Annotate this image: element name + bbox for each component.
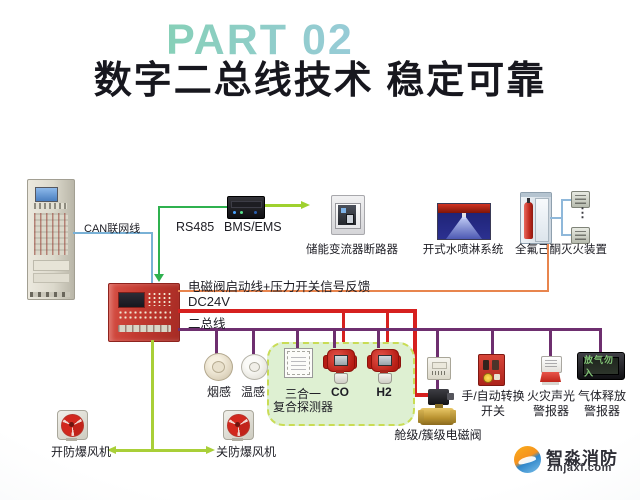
detector-lcd	[378, 355, 392, 366]
brand-logo-icon	[514, 446, 541, 473]
cabinet-foot	[30, 292, 70, 297]
three-in-one-detector-image	[284, 348, 313, 378]
page-title: 数字二总线技术 稳定可靠	[0, 49, 640, 104]
breaker-label: 储能变流器断路器	[306, 241, 398, 257]
panel-lcd	[118, 292, 145, 308]
nozzle-bracket-line	[561, 199, 563, 235]
bms-ems-device-image	[227, 196, 265, 219]
smoke-label: 烟感	[207, 383, 231, 400]
bms-to-breaker-arrowhead	[301, 201, 310, 209]
valve-nut	[450, 410, 456, 423]
open-fan-label: 开防爆风机	[51, 443, 111, 460]
panel-indicator-lights	[147, 292, 171, 306]
module-terminals	[432, 371, 445, 375]
gas-control-panel-image	[108, 283, 180, 342]
h2-label: H2	[376, 385, 391, 399]
valve-coil	[428, 389, 449, 405]
nozzle-bracket-line	[561, 234, 571, 236]
h2-detector-image	[369, 346, 399, 382]
explosion-proof-fan-image	[223, 408, 252, 441]
heat-label: 温感	[241, 383, 265, 400]
fire-sounder-strobe-image	[540, 356, 561, 385]
bms-ems-label: BMS/EMS	[224, 220, 282, 234]
spray-cone	[446, 217, 482, 239]
solenoid-feedback-line	[547, 244, 549, 291]
detector-lcd	[334, 355, 348, 366]
fan-hub	[69, 422, 74, 427]
solenoid-valve-image	[418, 387, 456, 429]
gas-sign-screen: 放气勿入	[583, 357, 619, 375]
rs485-arrowhead	[154, 274, 164, 282]
smoke-detector-image	[204, 353, 233, 381]
co-label: CO	[331, 385, 349, 399]
valve-label: 舱级/簇级电磁阀	[394, 426, 481, 443]
switch-yellow-button	[483, 373, 493, 383]
breaker-marking	[341, 208, 346, 213]
combo-label-line2: 复合探测器	[273, 398, 333, 415]
nozzle-bands	[575, 231, 586, 240]
red-cylinder	[524, 202, 533, 239]
can-line	[151, 232, 153, 283]
fan-hub	[235, 422, 240, 427]
nozzle-bands	[575, 195, 586, 204]
two-bus-drop-h2	[377, 328, 380, 348]
gas-release-sign-image: 放气勿入	[577, 352, 625, 380]
panel-indicator-lights	[118, 310, 171, 321]
rs485-line	[158, 206, 227, 208]
two-bus-drop-co	[333, 328, 336, 348]
sounder-strobe-cone	[540, 372, 561, 382]
two-bus-drop-gas-sign	[599, 328, 602, 353]
ffh-extinguisher-cabinet-image	[520, 192, 552, 244]
fan-foot	[66, 438, 77, 441]
cabinet-lcd-screen	[35, 187, 58, 202]
rs485-label: RS485	[176, 220, 214, 234]
bms-to-breaker-arrow-line	[265, 204, 302, 207]
dc24v-label: DC24V	[188, 294, 230, 309]
two-bus-drop-module	[436, 328, 439, 357]
cabinet-led-grid	[34, 213, 68, 255]
sounder-base	[542, 382, 559, 385]
diagram-canvas: PART 02 数字二总线技术 稳定可靠 CAN联网线 RS485 BMS/EM…	[0, 0, 640, 500]
spray-ceiling	[438, 204, 490, 213]
two-bus-drop-combo	[296, 328, 299, 350]
two-bus-line	[178, 328, 602, 331]
can-line-label: CAN联网线	[84, 220, 140, 236]
explosion-proof-fan-image	[57, 408, 86, 441]
water-spray-system-image	[437, 203, 491, 240]
nozzle-bracket-line	[561, 199, 571, 201]
panel-key-strip	[118, 325, 171, 332]
fan-control-line	[151, 340, 154, 450]
gas-release-label-line2: 警报器	[584, 402, 620, 419]
valve-nut	[418, 410, 424, 423]
close-fan-arrowhead	[206, 446, 215, 454]
switch-label-line2: 开关	[481, 402, 505, 419]
two-bus-drop-heat	[252, 328, 255, 354]
two-bus-drop-switch	[491, 328, 494, 355]
valve-brass-body	[420, 408, 454, 425]
two-bus-label: 二总线	[188, 313, 226, 332]
more-nozzles-ellipsis: ⋮	[576, 209, 589, 216]
breaker-toggle	[346, 214, 354, 224]
cabinet-panel	[33, 273, 70, 283]
switch-slot	[492, 360, 499, 370]
manual-auto-switch-image	[478, 354, 505, 386]
bms-led-lights	[233, 211, 236, 214]
brand-website: zmjaxf.com	[547, 462, 612, 474]
cabinet-top-strip	[521, 193, 551, 197]
cylinder-valve	[527, 198, 530, 203]
solenoid-feedback-label: 电磁阀启动线+压力开关信号反馈	[188, 276, 370, 295]
ffh-device-label: 全氟己酮灭火装置	[515, 241, 607, 257]
storage-converter-breaker-image	[331, 195, 365, 235]
close-fan-label: 关防爆风机	[216, 443, 276, 460]
module-window	[432, 362, 447, 369]
water-spray-label: 开式水喷淋系统	[423, 241, 504, 257]
combo-detector-face	[291, 356, 306, 370]
bms-slot	[231, 201, 262, 208]
switch-tag	[494, 374, 500, 380]
heat-detector-image	[241, 354, 268, 380]
co-detector-image	[325, 346, 355, 382]
fire-controller-cabinet-image	[27, 179, 75, 300]
io-module-image	[427, 357, 451, 380]
detector-sensor-head	[334, 373, 348, 384]
two-bus-drop-sounder	[549, 328, 552, 356]
valve-coil-connector	[447, 393, 454, 400]
cabinet-door	[535, 198, 549, 242]
detector-sensor-head	[378, 373, 392, 384]
sounder-label-line2: 警报器	[533, 402, 569, 419]
two-bus-drop-smoke	[215, 328, 218, 354]
cabinet-panel	[33, 260, 70, 271]
rs485-line	[158, 206, 160, 274]
fan-control-line	[116, 449, 206, 452]
switch-slot	[483, 360, 489, 370]
cabinet-button-row	[34, 203, 67, 209]
sounder-grille	[545, 360, 557, 367]
fan-foot	[232, 438, 243, 441]
